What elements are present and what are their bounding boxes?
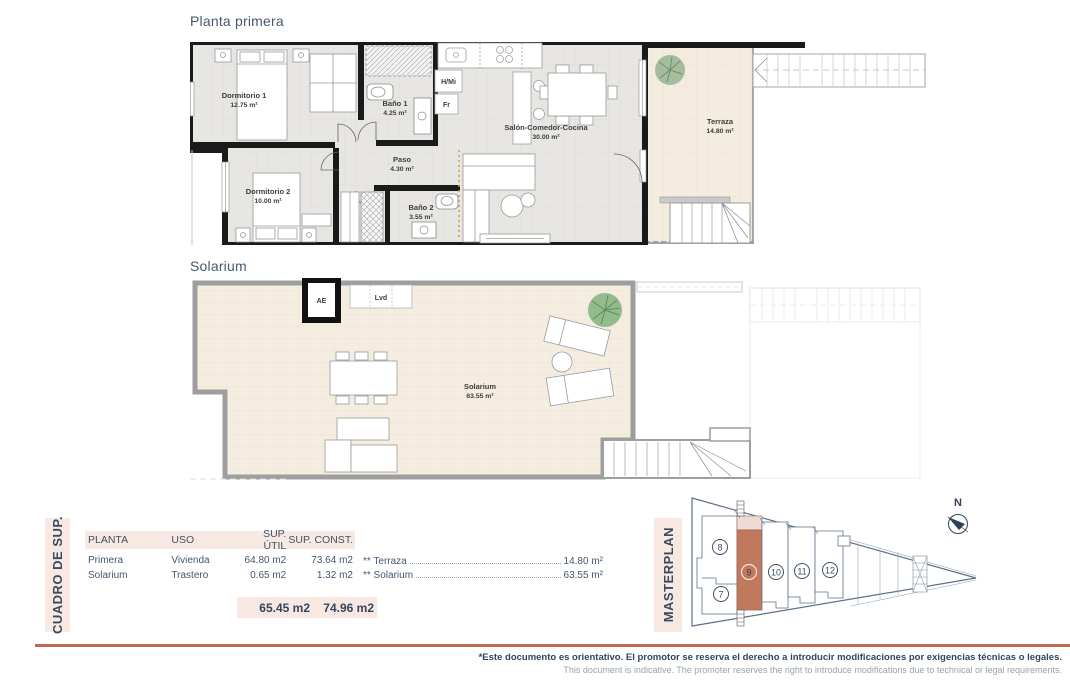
disclaimer: *Este documento es orientativo. El promo… [479, 651, 1062, 677]
table-row: Primera Vivienda 64.80 m2 73.64 m2 [85, 553, 355, 568]
unit-number-11: 11 [795, 564, 810, 579]
unit-number-12: 12 [823, 563, 838, 578]
cell-uso: Trastero [171, 570, 240, 581]
unit-number-label: 11 [797, 567, 806, 577]
room-label: Baño 1 [382, 99, 407, 108]
room-area: 4.25 m² [383, 110, 407, 117]
cuadro-side-bar: CUADRO DE SUP. [45, 518, 70, 632]
room-label: Salón-Comedor-Cocina [504, 123, 588, 132]
terraza-plant-icon [655, 55, 685, 85]
cell-planta: Primera [85, 555, 171, 566]
surface-notes: ** Terraza 14.80 m² ** Solarium 63.55 m² [363, 553, 603, 581]
note-value: 14.80 m² [564, 556, 603, 567]
room-label: Baño 2 [408, 203, 433, 212]
unit-number-label: 8 [717, 543, 722, 553]
appliance-boxes: H/Mi Fr [435, 70, 462, 114]
cuadro-side-label: CUADRO DE SUP. [50, 516, 65, 634]
floor-plan-page: Planta primera [0, 0, 1070, 682]
unit-number-label: 7 [718, 590, 723, 600]
unit-number-10: 10 [769, 565, 784, 580]
room-label: Paso [393, 155, 411, 164]
footer-accent-rule [35, 644, 1070, 647]
dotted-leader [410, 563, 561, 564]
header-uso: USO [171, 534, 240, 546]
masterplan-side-label: MASTERPLAN [661, 527, 676, 622]
plan1-title: Planta primera [190, 13, 284, 29]
fr-label: Fr [443, 102, 450, 109]
header-planta: PLANTA [85, 534, 171, 546]
total-util: 65.45 m2 [237, 601, 310, 615]
external-stair [753, 54, 925, 87]
solarium-plant-icon [588, 293, 622, 327]
dotted-leader [416, 577, 561, 578]
room-area: 4.30 m² [390, 166, 414, 173]
masterplan-units [697, 501, 976, 626]
room-area: 30.00 m² [532, 134, 560, 141]
compass-north-label: N [954, 497, 962, 509]
disclaimer-es: *Este documento es orientativo. El promo… [479, 651, 1062, 664]
cell-planta: Solarium [85, 570, 171, 581]
disclaimer-en: This document is indicative. The promote… [479, 664, 1062, 677]
laundry-lvd: Lvd [350, 285, 412, 308]
cell-const: 73.64 m2 [286, 555, 355, 566]
ae-label: AE [317, 298, 327, 305]
lvd-label: Lvd [375, 295, 387, 302]
note-label: ** Solarium [363, 570, 413, 581]
room-label: Terraza [707, 117, 734, 126]
floor-plan-solarium: AE Lvd [190, 278, 930, 480]
surface-table-header: PLANTA USO SUP. ÚTIL SUP. CONST. [85, 531, 355, 549]
hmi-label: H/Mi [441, 79, 456, 86]
note-label: ** Terraza [363, 556, 407, 567]
plan2-title: Solarium [190, 258, 247, 274]
dining-table [540, 65, 617, 125]
room-label: Dormitorio 2 [246, 187, 291, 196]
cell-const: 1.32 m2 [286, 570, 355, 581]
unit-number-7: 7 [714, 587, 729, 602]
total-const: 74.96 m2 [310, 601, 374, 615]
room-area: 12.75 m² [230, 102, 258, 109]
note-row: ** Terraza 14.80 m² [363, 553, 603, 567]
room-area: 63.55 m² [466, 393, 494, 400]
header-sup-const: SUP. CONST. [286, 534, 355, 546]
compass-icon: N [938, 494, 978, 542]
unit-number-label: 10 [771, 568, 781, 578]
room-area: 10.00 m² [254, 198, 282, 205]
room-label: Solarium [464, 382, 496, 391]
note-row: ** Solarium 63.55 m² [363, 567, 603, 581]
cell-uso: Vivienda [171, 555, 240, 566]
room-area: 3.55 m² [409, 214, 433, 221]
terraza-stair [660, 197, 750, 243]
header-sup-util: SUP. ÚTIL [240, 528, 286, 552]
unit-number-8: 8 [713, 540, 728, 555]
elevator-ae: AE [305, 280, 338, 320]
surface-table: PLANTA USO SUP. ÚTIL SUP. CONST. Primera… [85, 531, 355, 583]
note-value: 63.55 m² [564, 570, 603, 581]
totals-row: 65.45 m2 74.96 m2 [237, 597, 377, 618]
room-area: 14.80 m² [706, 128, 734, 135]
table-row: Solarium Trastero 0.65 m2 1.32 m2 [85, 568, 355, 583]
outdoor-table [330, 352, 397, 404]
cell-util: 0.65 m2 [240, 570, 286, 581]
cell-util: 64.80 m2 [240, 555, 286, 566]
floor-plan-planta-primera: H/Mi Fr [190, 42, 930, 245]
masterplan-side-bar: MASTERPLAN [654, 518, 682, 632]
unit-number-label: 12 [825, 566, 835, 576]
unit-number-label: 9 [746, 568, 751, 578]
room-label: Dormitorio 1 [222, 91, 267, 100]
